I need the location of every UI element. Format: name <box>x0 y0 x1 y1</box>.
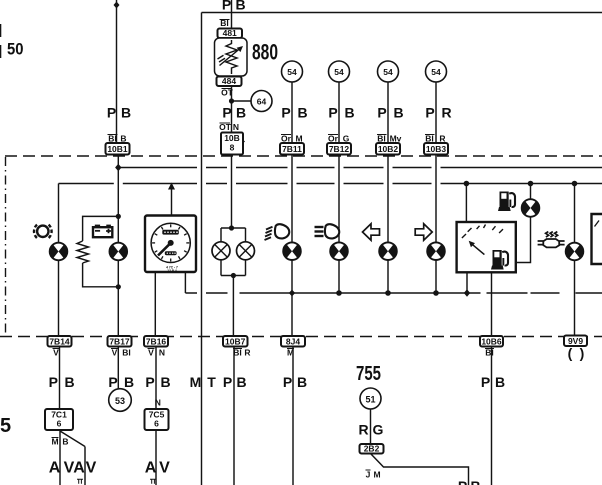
svg-text:B: B <box>495 374 505 390</box>
svg-text:P: P <box>458 478 467 485</box>
svg-text:10B2: 10B2 <box>378 144 399 154</box>
svg-text:G: G <box>373 422 384 438</box>
svg-text:5: 5 <box>0 415 11 437</box>
svg-text:P: P <box>107 105 116 121</box>
svg-text:BI: BI <box>122 348 131 358</box>
svg-text:7B11: 7B11 <box>282 144 302 154</box>
svg-text:10B7: 10B7 <box>225 336 246 346</box>
svg-text:54: 54 <box>287 67 297 77</box>
svg-text:B: B <box>470 478 480 485</box>
svg-text:N: N <box>233 122 239 132</box>
svg-text:7B14: 7B14 <box>49 336 70 346</box>
svg-text:10B6: 10B6 <box>481 336 502 346</box>
svg-text:50: 50 <box>7 40 24 59</box>
svg-text:R: R <box>244 348 250 358</box>
svg-text:54: 54 <box>431 67 441 77</box>
svg-text:N: N <box>159 348 165 358</box>
svg-text:54: 54 <box>383 67 393 77</box>
svg-text:B: B <box>124 374 134 390</box>
svg-text:8: 8 <box>230 143 235 153</box>
svg-text:P: P <box>108 374 117 390</box>
svg-text:481: 481 <box>223 28 237 38</box>
svg-text:A: A <box>145 460 157 477</box>
svg-text:P: P <box>223 374 232 390</box>
svg-text:P: P <box>281 105 290 121</box>
svg-text:P: P <box>328 105 337 121</box>
svg-text:484: 484 <box>222 76 236 86</box>
svg-text:M: M <box>373 470 380 480</box>
svg-text:2B2: 2B2 <box>364 444 380 454</box>
svg-text:51: 51 <box>365 394 375 404</box>
svg-text:7B16: 7B16 <box>146 336 167 346</box>
svg-text:N: N <box>155 398 161 408</box>
svg-text:V: V <box>86 460 97 477</box>
svg-text:P: P <box>222 0 231 13</box>
svg-text:A: A <box>73 460 85 477</box>
svg-text:B: B <box>344 105 354 121</box>
svg-text:10B: 10B <box>224 133 240 143</box>
svg-text:B: B <box>121 105 131 121</box>
svg-text:A: A <box>49 460 61 477</box>
svg-text:B: B <box>160 374 170 390</box>
svg-text:R: R <box>441 105 451 121</box>
svg-text:J: J <box>366 470 371 480</box>
svg-text:P: P <box>481 374 490 390</box>
svg-text:T: T <box>207 374 216 390</box>
svg-text:64: 64 <box>257 96 267 106</box>
svg-text:7B17: 7B17 <box>109 336 130 346</box>
svg-text:P: P <box>49 374 58 390</box>
svg-text:880: 880 <box>252 40 278 65</box>
svg-text:B: B <box>236 374 246 390</box>
svg-text:6: 6 <box>57 419 62 429</box>
svg-text:B: B <box>235 0 245 13</box>
svg-text:B: B <box>236 105 246 121</box>
svg-text:M: M <box>190 374 202 390</box>
svg-text:B: B <box>393 105 403 121</box>
svg-text:P: P <box>222 105 231 121</box>
svg-text:10B1: 10B1 <box>107 144 128 154</box>
svg-text:): ) <box>580 345 585 361</box>
svg-text:12 P 4: 12 P 4 <box>167 269 177 273</box>
svg-text:755: 755 <box>356 363 381 385</box>
svg-text:54: 54 <box>334 67 344 77</box>
svg-text:8J4: 8J4 <box>286 336 300 346</box>
svg-text:P: P <box>145 374 154 390</box>
svg-text:P: P <box>377 105 386 121</box>
svg-text:7B12: 7B12 <box>329 144 350 154</box>
svg-text:B: B <box>62 437 68 447</box>
svg-text:B: B <box>64 374 74 390</box>
svg-text:P: P <box>283 374 292 390</box>
svg-text:B: B <box>297 374 307 390</box>
svg-text:(: ( <box>568 345 573 361</box>
svg-text:10B3: 10B3 <box>426 144 447 154</box>
svg-text:R: R <box>358 422 368 438</box>
svg-text:P: P <box>425 105 434 121</box>
svg-text:53: 53 <box>115 396 125 406</box>
svg-text:6: 6 <box>154 419 159 429</box>
svg-text:B: B <box>297 105 307 121</box>
svg-text:V: V <box>159 460 170 477</box>
